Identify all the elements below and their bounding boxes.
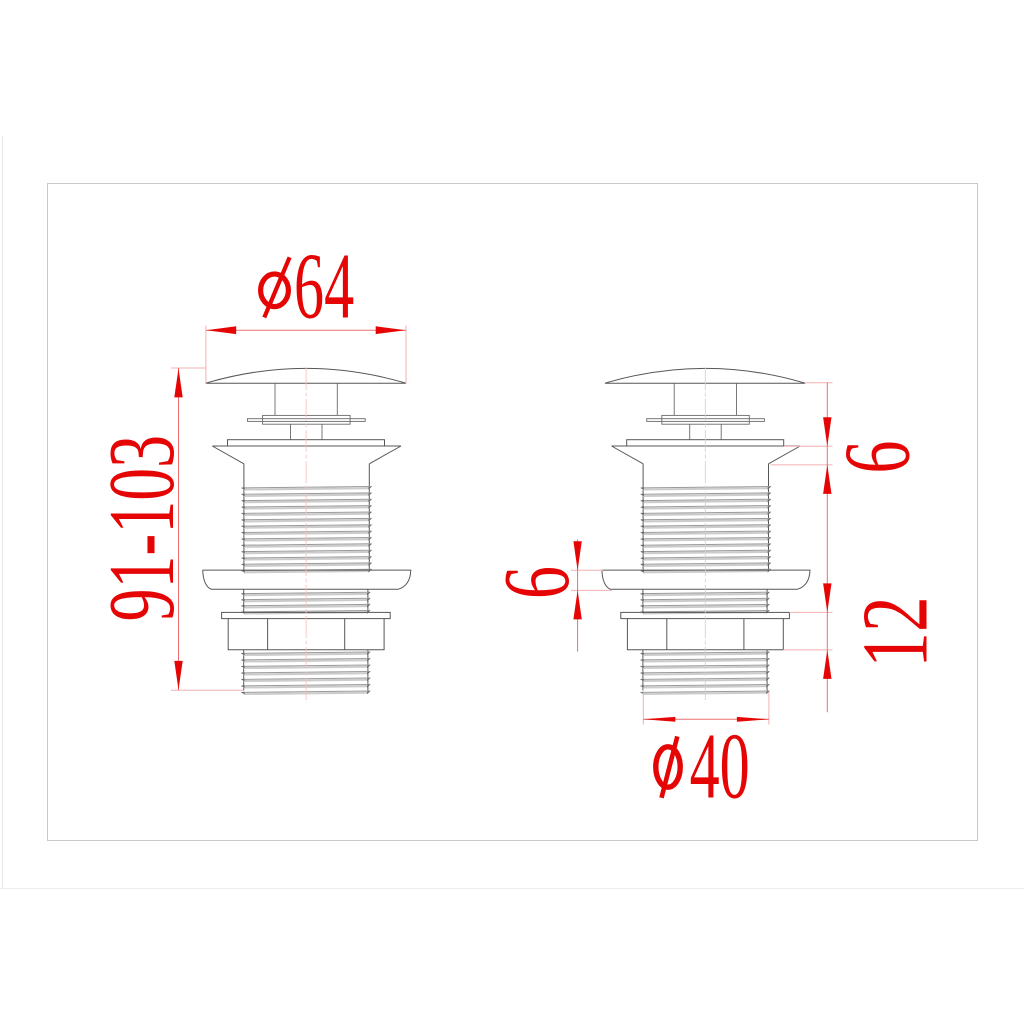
svg-text:6: 6 [485, 566, 589, 599]
svg-text:12: 12 [845, 596, 949, 667]
svg-text:91-103: 91-103 [90, 435, 194, 621]
svg-text:40: 40 [690, 715, 750, 819]
svg-text:6: 6 [825, 441, 929, 474]
svg-text:64: 64 [294, 235, 354, 339]
